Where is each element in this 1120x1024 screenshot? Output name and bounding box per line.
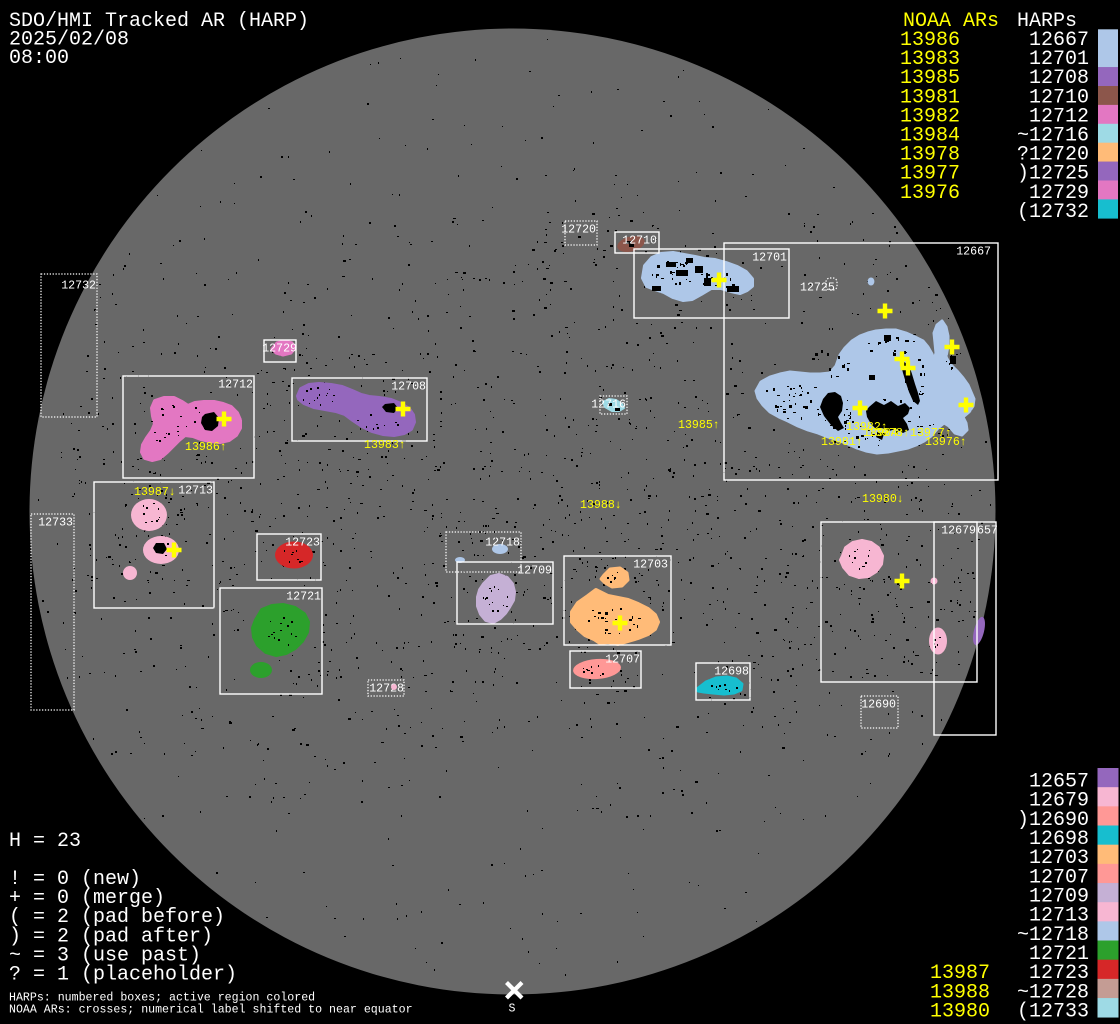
- svg-text:12698: 12698: [714, 666, 749, 679]
- svg-text:12690: 12690: [861, 699, 896, 712]
- svg-text:12709: 12709: [517, 565, 552, 578]
- svg-text:12707: 12707: [605, 654, 640, 667]
- svg-text:12708: 12708: [391, 381, 426, 394]
- svg-text:12728: 12728: [369, 683, 404, 696]
- svg-text:(12733: (12733: [1017, 1001, 1089, 1024]
- svg-text:12723: 12723: [285, 537, 320, 550]
- svg-text:12720: 12720: [561, 224, 596, 237]
- svg-text:13987↓: 13987↓: [134, 486, 176, 499]
- svg-text:12710: 12710: [622, 235, 657, 248]
- svg-text:12718: 12718: [485, 537, 520, 550]
- svg-text:12713: 12713: [178, 485, 213, 498]
- svg-text:12679: 12679: [941, 525, 976, 538]
- svg-text:NOAA ARs: crosses; numerical l: NOAA ARs: crosses; numerical label shift…: [9, 1003, 413, 1016]
- svg-text:13981↑: 13981↑: [821, 436, 863, 449]
- svg-text:13988↓: 13988↓: [580, 499, 622, 512]
- svg-text:12701: 12701: [752, 252, 787, 265]
- svg-text:12667: 12667: [956, 246, 991, 259]
- svg-text:(12732: (12732: [1017, 201, 1089, 224]
- svg-text:13980: 13980: [930, 1001, 990, 1024]
- svg-text:13983↑: 13983↑: [364, 439, 406, 452]
- svg-text:12712: 12712: [218, 379, 253, 392]
- svg-text:13976↑: 13976↑: [925, 436, 967, 449]
- svg-text:08:00: 08:00: [9, 47, 69, 70]
- svg-text:12732: 12732: [61, 280, 96, 293]
- svg-text:H = 23: H = 23: [9, 830, 81, 853]
- svg-text:S: S: [509, 1003, 516, 1016]
- svg-text:12733: 12733: [38, 517, 73, 530]
- svg-text:13985↑: 13985↑: [678, 419, 720, 432]
- svg-text:12716: 12716: [591, 399, 626, 412]
- svg-text:12703: 12703: [633, 559, 668, 572]
- svg-text:12725: 12725: [800, 282, 835, 295]
- svg-text:13978↑: 13978↑: [868, 427, 910, 440]
- svg-text:657: 657: [977, 525, 998, 538]
- svg-text:13976: 13976: [900, 182, 960, 205]
- svg-text:? = 1 (placeholder): ? = 1 (placeholder): [9, 964, 237, 987]
- svg-text:12721: 12721: [286, 591, 321, 604]
- svg-text:12729: 12729: [262, 343, 297, 356]
- svg-text:13986↑: 13986↑: [185, 441, 227, 454]
- svg-text:13980↓: 13980↓: [862, 493, 904, 506]
